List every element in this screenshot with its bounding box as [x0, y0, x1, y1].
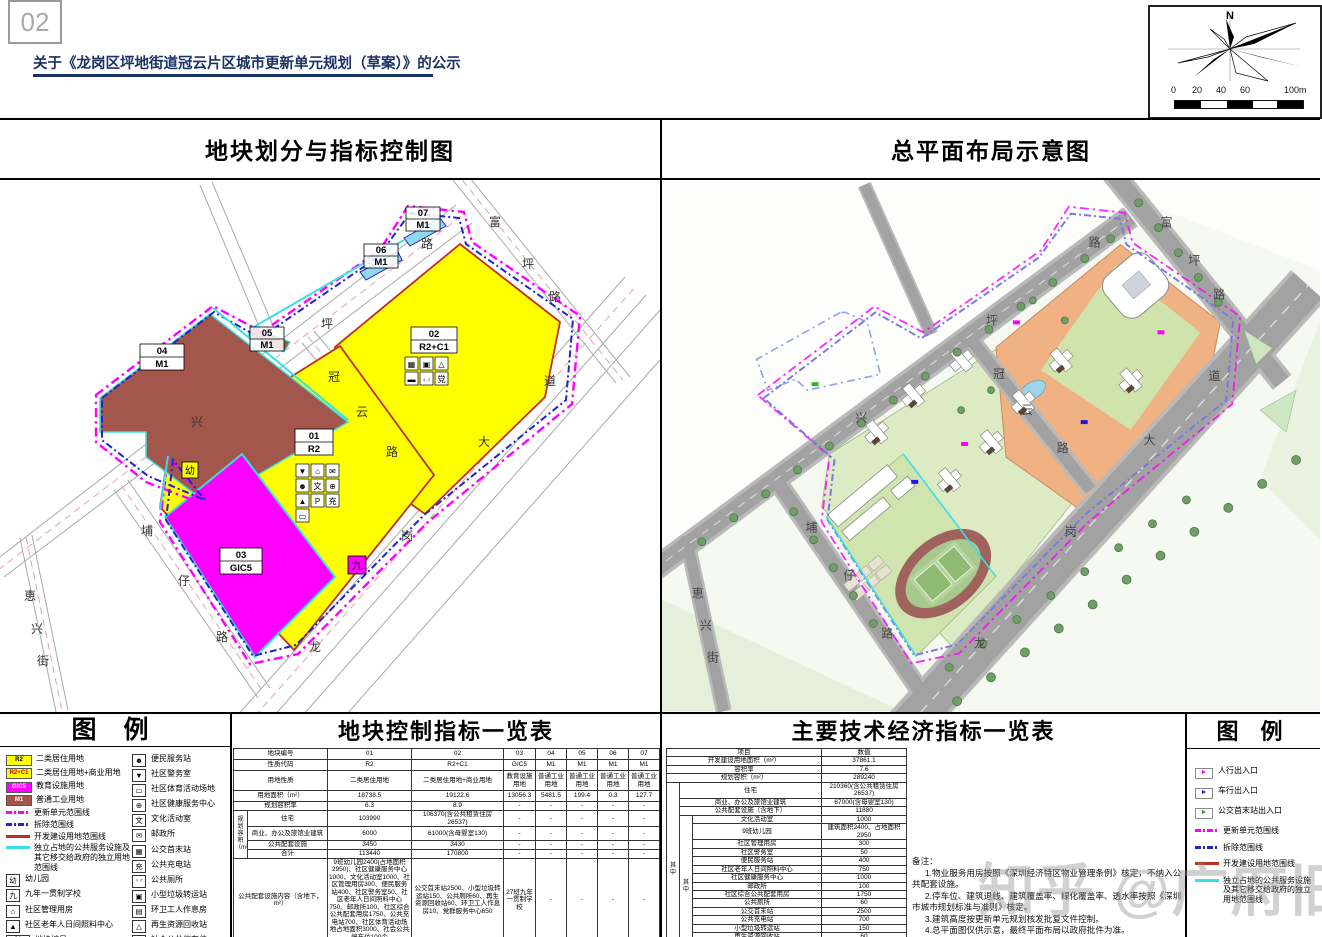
svg-text:道: 道	[544, 374, 556, 388]
svg-text:大: 大	[478, 435, 490, 449]
r2c1-swatch: R2+C1	[6, 768, 32, 779]
service-station-icon: ☻	[298, 482, 306, 491]
legend-item: ✉邮政所	[132, 829, 228, 842]
legend-item: ▦公交首末站	[132, 845, 228, 858]
toilet-icon: ♀♂	[422, 378, 431, 384]
page-number-box: 02	[8, 0, 62, 44]
legend-item: ☻便民服务站	[132, 754, 228, 767]
plot-table-title: 地块控制指标一览表	[232, 716, 660, 748]
waste-transfer-icon: ▣	[132, 890, 146, 903]
svg-text:兴: 兴	[855, 411, 867, 425]
bus-terminus-icon: ▦	[132, 845, 146, 858]
compass-rose-icon: N	[1150, 7, 1316, 83]
community-office-icon: ⌂	[315, 467, 320, 476]
drawing-frame: 地块划分与指标控制图	[0, 118, 1320, 937]
svg-text:坪: 坪	[986, 313, 998, 327]
legend-item: 拆除范围线	[1195, 843, 1317, 853]
development-line-icon	[6, 835, 30, 838]
svg-text:大: 大	[1144, 433, 1156, 447]
demolition-line-icon	[1195, 846, 1219, 849]
m1-swatch: M1	[6, 795, 32, 806]
svg-text:兴: 兴	[191, 415, 203, 429]
r2-swatch: R2	[6, 755, 32, 766]
svg-text:街: 街	[37, 654, 49, 668]
legend-item: ♀♂公共厕所	[132, 875, 228, 888]
svg-text:路: 路	[1213, 286, 1225, 301]
sports-ground-icon: ▭	[299, 512, 307, 521]
legend-item: ▭社区体育活动场地	[132, 784, 228, 797]
map-legend-left: 图 例 R2二类居住用地 R2+C1二类居住用地+商业用地 GIC5教育设施用地…	[0, 714, 230, 937]
remark-line: 1.物业服务用房按照《深圳经济特区物业管理条例》核定，不纳入公共配套设施。	[912, 868, 1182, 891]
svg-text:04: 04	[157, 346, 168, 357]
legend-item: 开发建设用地范围线	[6, 832, 130, 842]
legend-item: 独立占地的公共服务设施及其它移交给政府的独立用地范围线	[1195, 876, 1317, 905]
svg-text:M1: M1	[374, 257, 388, 268]
renewal-line-icon	[1195, 829, 1219, 832]
svg-text:龙: 龙	[309, 640, 321, 654]
svg-text:坪: 坪	[321, 317, 333, 331]
legend-left-col1: R2二类居住用地 R2+C1二类居住用地+商业用地 GIC5教育设施用地 M1普…	[6, 754, 130, 937]
party-center-icon: 党	[438, 374, 446, 384]
svg-text:冠: 冠	[993, 367, 1005, 381]
scale-tick: 40	[1216, 85, 1226, 95]
legend-item: ▣小型垃圾转运站	[132, 890, 228, 903]
service-station-icon: ☻	[132, 754, 146, 767]
parcel-label-03: 03GIC5	[220, 548, 262, 574]
page-number: 02	[21, 7, 50, 38]
legend-item: 开发建设用地范围线	[1195, 859, 1317, 869]
legend-item: ▤环卫工人作息房	[132, 905, 228, 918]
sanitation-room-icon: ▤	[132, 905, 146, 918]
legend-right-items: ►人行出入口 ►车行出入口 ►公交首末站出入口 更新单元范围线 拆除范围线 开发…	[1195, 766, 1317, 907]
legend-item: ►公交首末站出入口	[1195, 806, 1317, 819]
elderly-care-icon: ▲	[299, 497, 307, 506]
charging-station-icon: 充	[329, 496, 337, 506]
legend-item: M1普通工业用地	[6, 795, 130, 807]
legend-item: R2二类居住用地	[6, 754, 130, 766]
legend-item: ►人行出入口	[1195, 766, 1317, 779]
svg-text:路: 路	[386, 444, 398, 459]
independent-line-icon	[1195, 879, 1219, 882]
parking-icon: P	[315, 497, 320, 506]
scale-tick: 100m	[1284, 85, 1307, 95]
svg-text:富: 富	[489, 214, 501, 229]
svg-text:龙: 龙	[974, 636, 986, 650]
svg-text:03: 03	[236, 550, 247, 561]
gic5-swatch: GIC5	[6, 782, 32, 793]
legend-item: 拆除范围线	[6, 820, 130, 830]
legend-item: 九九年一贯制学校	[6, 889, 130, 902]
toilet-icon: ♀♂	[132, 875, 146, 888]
legend-item: ▼社区警务室	[132, 769, 228, 782]
legend-item: ⊕社区健康服务中心	[132, 799, 228, 812]
svg-text:M1: M1	[416, 220, 430, 231]
map-legend-right: 图 例 ►人行出入口 ►车行出入口 ►公交首末站出入口 更新单元范围线 拆除范围…	[1187, 714, 1320, 937]
community-office-icon: ⌂	[6, 905, 20, 918]
svg-text:仔: 仔	[843, 569, 855, 583]
public-notice-sheet: 02 关于《龙岗区坪地街道冠云片区城市更新单元规划（草案）》的公示 N 0 20…	[0, 0, 1322, 937]
svg-text:埔: 埔	[141, 524, 153, 538]
svg-text:01: 01	[309, 431, 320, 442]
culture-room-icon: 文	[132, 814, 146, 827]
scale-tick: 0	[1171, 85, 1176, 95]
scale-tick: 20	[1192, 85, 1202, 95]
legend-item: ⌂社区管理用房	[6, 905, 130, 918]
svg-text:道: 道	[1208, 369, 1220, 383]
development-line-icon	[1195, 862, 1219, 865]
legend-left-title: 图 例	[0, 714, 230, 747]
svg-text:仔: 仔	[178, 574, 190, 588]
renewal-line-icon	[6, 811, 30, 814]
svg-text:07: 07	[418, 208, 429, 219]
plot-control-panel: 地块划分与指标控制图	[0, 120, 660, 712]
culture-room-icon: 文	[314, 481, 322, 491]
svg-text:路: 路	[549, 289, 561, 304]
bus-entrance-icon: ►	[1195, 808, 1213, 819]
compass-panel: N 0 20 40 60 100m	[1148, 5, 1322, 119]
left-panel-title: 地块划分与指标控制图	[0, 120, 660, 180]
pedestrian-entrance-icon: ►	[1195, 768, 1213, 779]
remark-line: 3.建筑高度按更新单元规划核发批复文件控制。	[912, 914, 1182, 926]
remarks-title: 备注：	[912, 856, 1182, 868]
svg-text:埔: 埔	[806, 521, 818, 535]
post-office-icon: ✉	[329, 467, 336, 476]
remark-line: 2.停车位、建筑退线、建筑覆盖率、绿化覆盖率、透水率按照《深圳市城市规划标准与准…	[912, 891, 1182, 914]
svg-text:岗: 岗	[401, 529, 413, 543]
legend-item: △再生资源回收站	[132, 920, 228, 933]
legend-item: ►车行出入口	[1195, 786, 1317, 799]
svg-text:06: 06	[376, 245, 387, 256]
vehicle-entrance-icon: ►	[1195, 788, 1213, 799]
recycle-station-icon: △	[438, 360, 445, 369]
kindergarten-icon: 幼	[185, 464, 195, 477]
svg-text:兴: 兴	[31, 622, 43, 636]
legend-left-col2: ☻便民服务站 ▼社区警务室 ▭社区体育活动场地 ⊕社区健康服务中心 文文化活动室…	[132, 754, 228, 937]
parcel-label-02: 02R2+C1	[411, 327, 457, 353]
remarks-block: 备注： 1.物业服务用房按照《深圳经济特区物业管理条例》核定，不纳入公共配套设施…	[912, 856, 1182, 937]
nine-year-school-icon: 九	[352, 559, 363, 572]
document-title: 关于《龙岗区坪地街道冠云片区城市更新单元规划（草案）》的公示	[33, 52, 461, 73]
svg-text:冠: 冠	[328, 370, 340, 384]
legend-item: 文文化活动室	[132, 814, 228, 827]
parcel-label-05: 05M1	[250, 327, 284, 351]
svg-text:GIC5: GIC5	[230, 563, 253, 574]
police-room-icon: ▼	[132, 769, 146, 782]
economic-indicators-table: 项目数值 开发建设用地面积（m²）37861.1 容积率7.6 规划容积（m²）…	[666, 748, 907, 937]
svg-text:R2: R2	[308, 444, 320, 455]
svg-text:云: 云	[1021, 403, 1033, 417]
legend-right-title: 图 例	[1187, 716, 1320, 749]
svg-text:恵: 恵	[24, 589, 36, 603]
svg-text:路: 路	[1057, 440, 1069, 455]
svg-text:坪: 坪	[522, 257, 534, 271]
scale-tick: 60	[1240, 85, 1250, 95]
police-room-icon: ▼	[299, 467, 307, 476]
svg-text:云: 云	[356, 405, 368, 419]
sanitation-room-icon: ▬	[408, 375, 416, 384]
plot-control-table: 地块编号01020304050607 性质代码R2R2+C1GIC5M1M1M1…	[233, 748, 660, 937]
recycle-station-icon: △	[132, 920, 146, 933]
health-center-icon: ⊕	[132, 799, 146, 812]
legend-item: 幼幼儿园	[6, 874, 130, 887]
scale-bar	[1174, 100, 1304, 109]
svg-text:02: 02	[429, 329, 440, 340]
post-office-icon: ✉	[132, 829, 146, 842]
nine-year-school-icon: 九	[6, 889, 20, 902]
sports-ground-icon: ▭	[132, 784, 146, 797]
remark-line: 4.总平面图仅供示意，最终平面布局以政府批件为准。	[912, 925, 1182, 937]
parcel-label-04: 04M1	[140, 344, 184, 370]
svg-text:兴: 兴	[700, 618, 712, 632]
svg-text:路: 路	[421, 236, 433, 251]
svg-text:恵: 恵	[692, 587, 704, 601]
kindergarten-icon: 幼	[6, 874, 20, 887]
legend-item: ▲社区老年人日间照料中心	[6, 920, 130, 933]
north-label: N	[1226, 10, 1234, 22]
svg-text:富: 富	[1160, 215, 1172, 230]
svg-text:路: 路	[881, 625, 893, 640]
health-center-icon: ⊕	[329, 482, 336, 491]
bottom-band: 图 例 R2二类居住用地 R2+C1二类居住用地+商业用地 GIC5教育设施用地…	[0, 712, 1320, 937]
economic-indicators-section: 主要技术经济指标一览表 项目数值 开发建设用地面积（m²）37861.1 容积率…	[662, 714, 1185, 937]
legend-item: 充公共充电站	[132, 860, 228, 873]
economic-table-title: 主要技术经济指标一览表	[662, 716, 1185, 748]
legend-item: 更新单元范围线	[6, 808, 130, 818]
site-plan-panel: 总平面布局示意图	[662, 120, 1320, 712]
plot-control-map: 富 坪 路 兴 坪 路 冠 云 路 龙 岗 大 道 埔 仔 路 恵	[0, 180, 660, 712]
svg-text:M1: M1	[260, 340, 274, 351]
site-plan-map: 富 坪 路 兴 坪 路 冠 云 路 龙 岗 大 道 埔 仔 路 恵	[662, 180, 1320, 712]
title-underline	[33, 74, 433, 77]
scale-labels: 0 20 40 60 100m	[1150, 85, 1320, 97]
legend-item: 独立占地的公共服务设施及其它移交给政府的独立用地范围线	[6, 843, 130, 872]
parcel-label-07: 07M1	[406, 207, 440, 231]
svg-text:街: 街	[707, 650, 719, 664]
legend-item: 更新单元范围线	[1195, 826, 1317, 836]
parcel-label-01: 01R2	[295, 429, 333, 455]
legend-item: GIC5教育设施用地	[6, 781, 130, 793]
bus-terminus-icon: ▦	[408, 360, 416, 369]
waste-transfer-icon: ▣	[423, 360, 431, 369]
svg-text:R2+C1: R2+C1	[419, 342, 450, 353]
svg-text:岗: 岗	[1065, 525, 1077, 539]
svg-text:路: 路	[1089, 235, 1101, 250]
independent-line-icon	[6, 846, 30, 849]
right-panel-title: 总平面布局示意图	[662, 120, 1320, 180]
demolition-line-icon	[6, 823, 30, 826]
parcel-label-06: 06M1	[364, 244, 398, 268]
legend-item: R2+C1二类居住用地+商业用地	[6, 768, 130, 780]
elderly-care-icon: ▲	[6, 920, 20, 933]
svg-text:路: 路	[216, 629, 228, 644]
svg-text:坪: 坪	[1188, 254, 1200, 268]
svg-text:05: 05	[262, 328, 273, 339]
svg-text:M1: M1	[155, 359, 169, 370]
charging-station-icon: 充	[132, 860, 146, 873]
plot-control-table-section: 地块控制指标一览表 地块编号01020304050607 性质代码R2R2+C1…	[232, 714, 660, 937]
